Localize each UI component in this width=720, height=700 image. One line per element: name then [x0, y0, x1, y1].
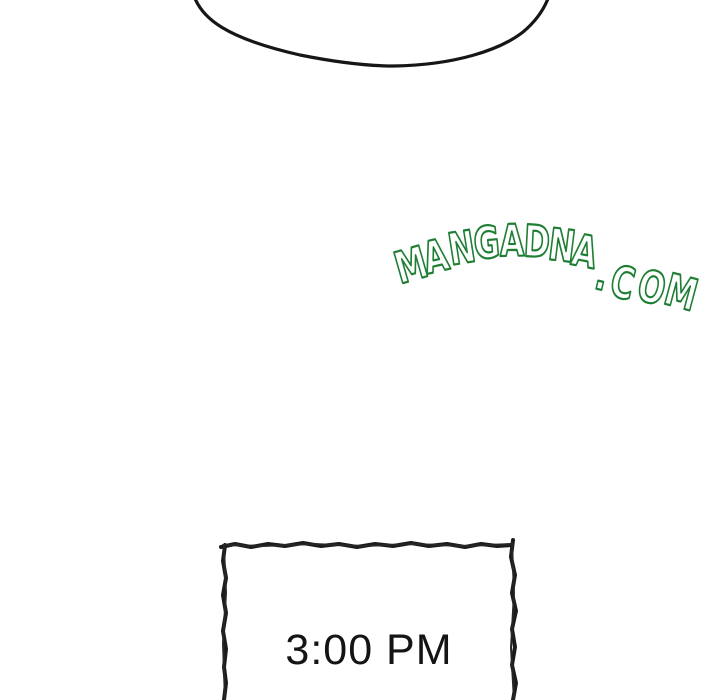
site-watermark: MANGADNA.COM	[380, 215, 720, 325]
watermark-text: MANGADNA.COM	[389, 215, 703, 322]
watermark-letter: A	[499, 215, 525, 267]
comic-page: { "scene": { "background_color": "#fffff…	[0, 0, 720, 700]
speech-bubble-curve	[194, 0, 549, 66]
time-label: 3:00 PM	[225, 543, 513, 700]
watermark-letter: G	[471, 217, 501, 271]
speech-bubble-outline	[0, 0, 720, 90]
